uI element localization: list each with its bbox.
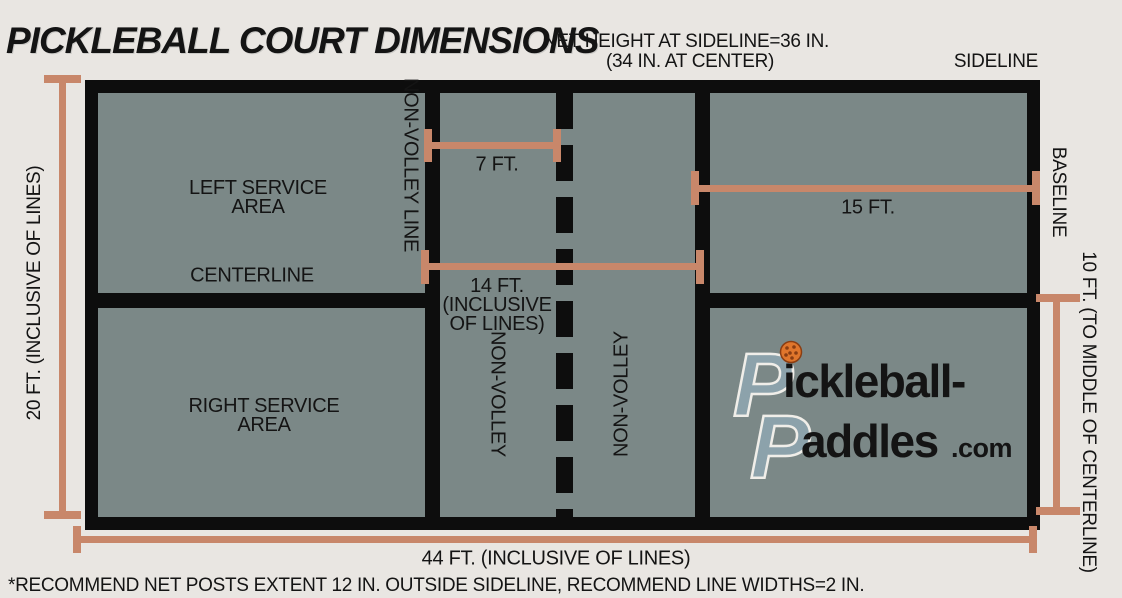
half-court-measure-label: 10 FT. (TO MIDDLE OF CENTERLINE) <box>1077 251 1099 573</box>
net-height-note-line2: (34 IN. AT CENTER) <box>606 51 774 73</box>
right-centerline <box>695 293 1027 308</box>
left-service-area-line2: AREA <box>189 198 327 217</box>
right-service-area-line2: AREA <box>189 416 340 435</box>
non-volley-line-label: NON-VOLLEY LINE <box>399 78 422 252</box>
left-non-volley-zone-label: NON-VOLLEY <box>486 331 509 457</box>
kitchen-total-line3: OF LINES) <box>442 315 551 334</box>
right-service-area-label: RIGHT SERVICE AREA <box>189 397 340 435</box>
left-centerline <box>98 293 440 308</box>
baseline-label: BASELINE <box>1047 147 1069 238</box>
pickleball-court-diagram: PICKLEBALL COURT DIMENSIONS NET HEIGHT A… <box>0 0 1122 598</box>
sideline-label: SIDELINE <box>954 51 1038 73</box>
left-service-area-label: LEFT SERVICE AREA <box>189 179 327 217</box>
footnote: *RECOMMEND NET POSTS EXTENT 12 IN. OUTSI… <box>8 575 864 597</box>
court-length-measure-label: 44 FT. (INCLUSIVE OF LINES) <box>422 548 691 571</box>
kitchen-total-measure-label: 14 FT. (INCLUSIVE OF LINES) <box>442 277 551 334</box>
service-depth-measure-label: 15 FT. <box>841 197 895 220</box>
logo-suffix: .com <box>951 435 1012 462</box>
centerline-label: CENTERLINE <box>190 265 314 288</box>
net-height-note-line1: NET HEIGHT AT SIDELINE=36 IN. <box>543 31 829 53</box>
logo-text-1: ickleball- <box>783 358 965 404</box>
logo-text-2: addles <box>801 418 938 464</box>
right-non-volley-zone-label: NON-VOLLEY <box>611 331 634 457</box>
court-width-measure-label: 20 FT. (INCLUSIVE OF LINES) <box>24 166 46 421</box>
non-volley-depth-measure-label: 7 FT. <box>476 154 519 177</box>
page-title: PICKLEBALL COURT DIMENSIONS <box>6 20 598 62</box>
pickleball-icon <box>779 340 803 364</box>
